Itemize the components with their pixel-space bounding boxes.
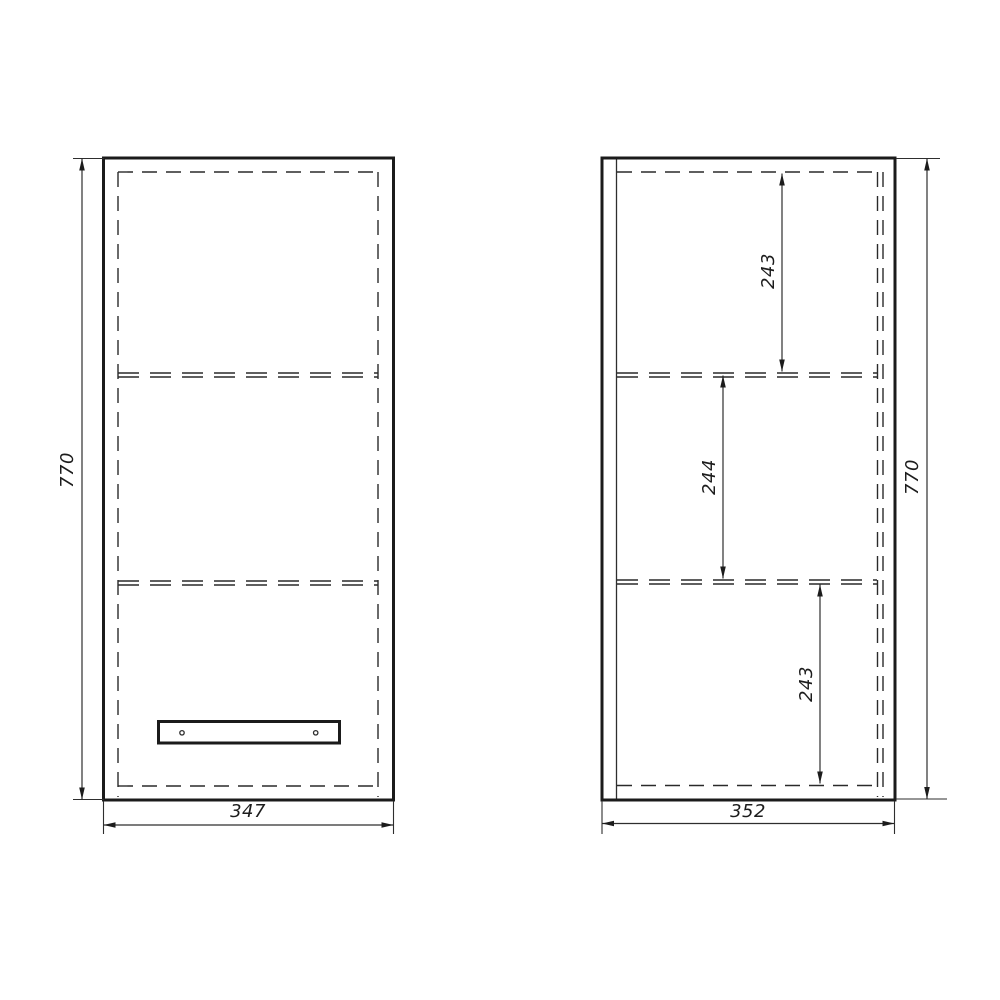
front-cabinet-outline — [104, 158, 394, 800]
dim-label-section-top: 243 — [758, 253, 779, 289]
dimension-side-width: 352 — [602, 801, 895, 834]
side-cabinet-outline — [602, 158, 895, 800]
handle-plate — [159, 722, 340, 744]
drawing-svg: 770 347 — [0, 0, 1000, 1000]
dim-label-side-height: 770 — [902, 459, 923, 495]
side-view — [602, 158, 895, 800]
technical-drawing: 770 347 — [0, 0, 1000, 1000]
dimension-front-height: 770 — [57, 159, 104, 800]
door-handle — [159, 722, 340, 744]
dim-label-section-middle: 244 — [699, 459, 720, 495]
dim-label-section-bottom: 243 — [796, 666, 817, 702]
dim-label-side-width: 352 — [730, 801, 766, 822]
dim-label-front-height: 770 — [57, 452, 78, 488]
dimension-side-height: 770 — [896, 159, 947, 800]
dim-label-front-width: 347 — [230, 801, 266, 822]
front-view — [104, 158, 394, 800]
dimension-front-width: 347 — [104, 801, 394, 834]
